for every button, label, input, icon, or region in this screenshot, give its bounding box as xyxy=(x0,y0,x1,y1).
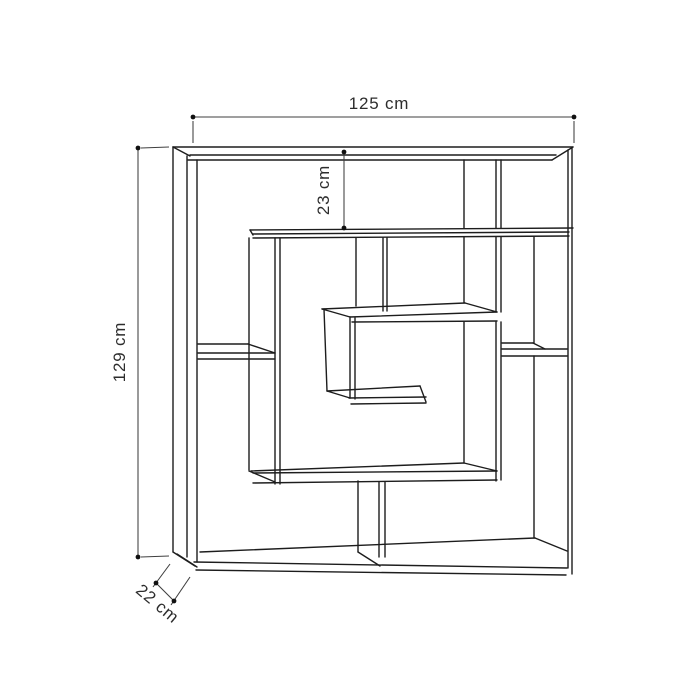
structure-line xyxy=(253,236,569,238)
dim-depth-dot xyxy=(154,581,159,586)
structure-line xyxy=(253,232,569,234)
structure-line xyxy=(250,228,573,230)
structure-line xyxy=(350,312,497,317)
structure-line xyxy=(349,397,426,398)
dim-top-gap-dot xyxy=(342,226,347,231)
dim-width-dot xyxy=(572,115,577,120)
structure-line xyxy=(352,321,497,322)
bookshelf-technical-drawing: 125 cm23 cm129 cm22 cm xyxy=(0,0,700,700)
structure-line xyxy=(322,303,465,309)
structure-line xyxy=(196,570,566,575)
dim-height-dot xyxy=(136,555,141,560)
structure-line xyxy=(327,386,420,391)
structure-line xyxy=(194,562,567,568)
structure-line xyxy=(253,480,497,483)
structure-line xyxy=(324,309,327,391)
dim-depth-label: 22 cm xyxy=(132,580,183,627)
dim-width-dot xyxy=(191,115,196,120)
structure-line xyxy=(322,309,350,317)
dim-height-extension-line xyxy=(141,147,169,148)
structure-line xyxy=(351,403,426,404)
structure-line xyxy=(464,463,497,471)
structure-line xyxy=(251,463,464,471)
structure-line xyxy=(358,552,380,566)
dim-height-label: 129 cm xyxy=(110,322,129,383)
dim-top-gap-label: 23 cm xyxy=(314,165,333,215)
structure-line xyxy=(552,147,573,160)
structure-line xyxy=(200,538,535,552)
dim-height-extension-line xyxy=(141,556,169,557)
dim-width-label: 125 cm xyxy=(349,94,410,113)
furniture-dimension-page: 125 cm23 cm129 cm22 cm xyxy=(0,0,700,700)
structure-line xyxy=(465,303,497,312)
structure-line xyxy=(535,538,567,551)
dim-height-dot xyxy=(136,146,141,151)
dim-top-gap-dot xyxy=(342,150,347,155)
structure-line xyxy=(327,391,350,398)
structure-line xyxy=(173,147,190,156)
structure-line xyxy=(248,344,275,353)
structure-line xyxy=(420,386,426,402)
structure-line xyxy=(250,230,253,235)
structure-line xyxy=(253,471,497,473)
structure-line xyxy=(533,343,545,349)
